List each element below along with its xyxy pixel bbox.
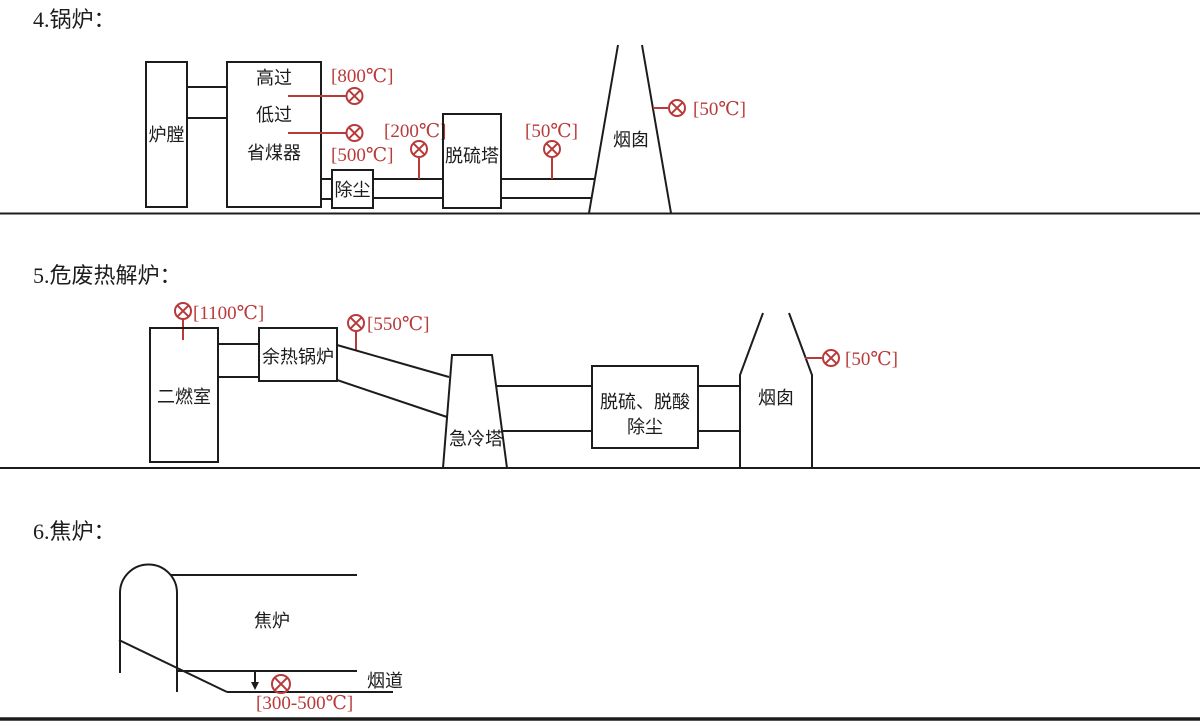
temp-label-200: [200℃] — [384, 121, 446, 142]
temp-label-50-pyrolysis: [50℃] — [845, 349, 898, 370]
dedust-desulf-duct — [373, 179, 443, 198]
desulfurization-tower-label: 脱硫塔 — [445, 146, 499, 166]
quench-tower-label: 急冷塔 — [449, 429, 503, 449]
flue-label: 烟道 — [367, 671, 403, 691]
temp-sensor-icon — [411, 141, 427, 157]
down-arrow-icon — [251, 672, 259, 690]
waste-heat-boiler-label: 余热锅炉 — [262, 347, 334, 367]
chamber-whb-duct — [218, 344, 259, 377]
temp-sensor-icon — [669, 100, 685, 116]
oven-ramp-line — [119, 640, 227, 692]
temp-sensor-icon — [175, 303, 191, 319]
whb-quench-duct — [337, 345, 449, 417]
dust-removal-label: 除尘 — [335, 180, 371, 200]
coke-oven-arch-shape — [120, 565, 177, 693]
temp-label-1100: [1100℃] — [193, 303, 264, 324]
temp-label-500: [500℃] — [331, 145, 393, 166]
treatment-label-line1: 脱硫、脱酸 — [600, 392, 690, 412]
temp-label-800: [800℃] — [331, 66, 393, 87]
pyrolysis-section: 5.危废热解炉： [1100℃] 二燃室 余热锅炉 [550℃] 急冷塔 — [0, 263, 1200, 468]
treatment-chimney-duct — [698, 386, 740, 431]
boiler-title: 4.锅炉： — [33, 7, 116, 32]
temp-sensor-icon — [347, 125, 363, 141]
furnace-superheater-duct — [187, 87, 227, 118]
boiler-chimney-label: 烟囱 — [613, 130, 649, 150]
temp-label-50-chimney: [50℃] — [693, 99, 746, 120]
coke-oven-title: 6.焦炉： — [33, 519, 116, 544]
pyrolysis-chimney-label: 烟囱 — [758, 388, 794, 408]
temp-sensor-icon — [823, 350, 839, 366]
temp-label-550: [550℃] — [367, 314, 429, 335]
diagram-page: 4.锅炉： 炉膛 高过 低过 省煤器 [800℃] [500℃] 除尘 — [0, 0, 1200, 723]
desulf-chimney-duct — [501, 179, 595, 198]
temp-sensor-icon — [347, 88, 363, 104]
quench-treatment-duct — [496, 386, 592, 431]
coke-oven-label: 焦炉 — [254, 611, 290, 631]
diagram-canvas: 4.锅炉： 炉膛 高过 低过 省煤器 [800℃] [500℃] 除尘 — [0, 0, 1200, 723]
low-superheater-label: 低过 — [256, 105, 292, 125]
temp-label-300-500: [300-500℃] — [256, 693, 353, 714]
secondary-combustion-label: 二燃室 — [157, 387, 211, 407]
temp-sensor-icon — [348, 315, 364, 331]
superheater-dedust-duct — [321, 179, 332, 199]
quench-tower-shape — [443, 355, 507, 468]
temp-label-50-duct: [50℃] — [525, 121, 578, 142]
furnace-chamber-label: 炉膛 — [149, 125, 185, 145]
economizer-label: 省煤器 — [247, 143, 301, 163]
temp-sensor-icon — [544, 141, 560, 157]
boiler-chimney-shape — [589, 45, 671, 213]
coke-oven-section: 6.焦炉： 焦炉 [300-500℃] 烟道 — [0, 519, 1200, 719]
pyrolysis-title: 5.危废热解炉： — [33, 263, 182, 288]
high-superheater-label: 高过 — [256, 68, 292, 88]
temp-sensor-icon — [272, 675, 290, 693]
boiler-section: 4.锅炉： 炉膛 高过 低过 省煤器 [800℃] [500℃] 除尘 — [0, 7, 1200, 214]
treatment-label-line2: 除尘 — [627, 417, 663, 437]
